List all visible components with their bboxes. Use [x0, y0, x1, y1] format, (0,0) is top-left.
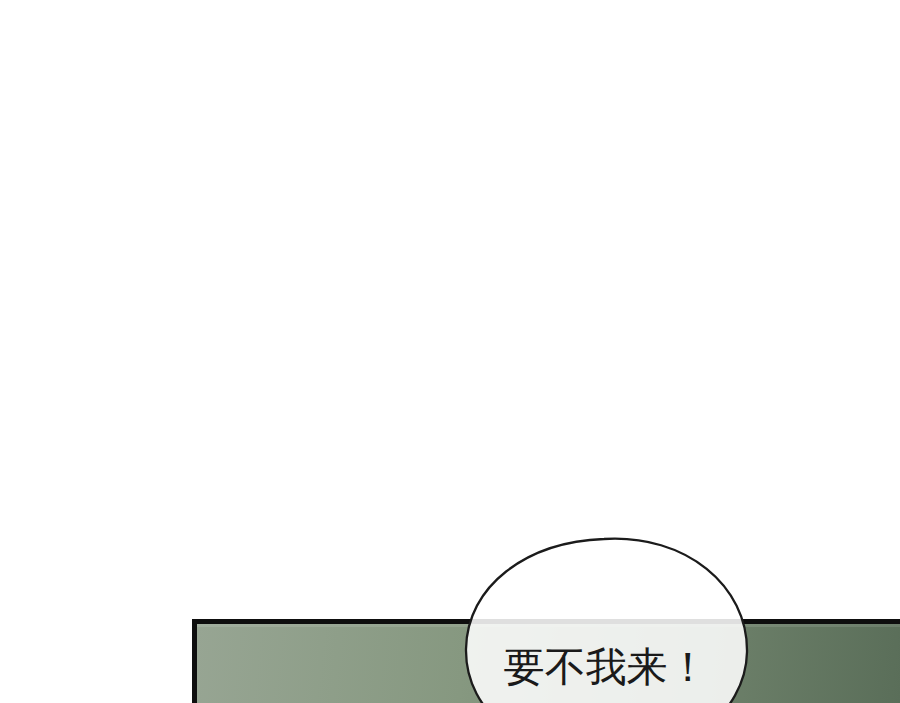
speech-bubble-text: 要不我来！ — [466, 645, 746, 690]
comic-page: 要不我来！ — [0, 0, 900, 703]
speech-bubble — [0, 0, 900, 703]
